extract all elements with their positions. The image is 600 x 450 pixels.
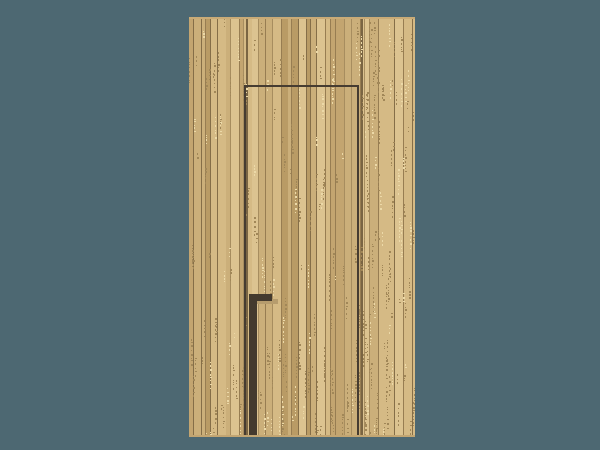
handle-shaft[interactable] [249,294,257,435]
scene [0,0,600,450]
door-frame[interactable] [244,85,359,435]
